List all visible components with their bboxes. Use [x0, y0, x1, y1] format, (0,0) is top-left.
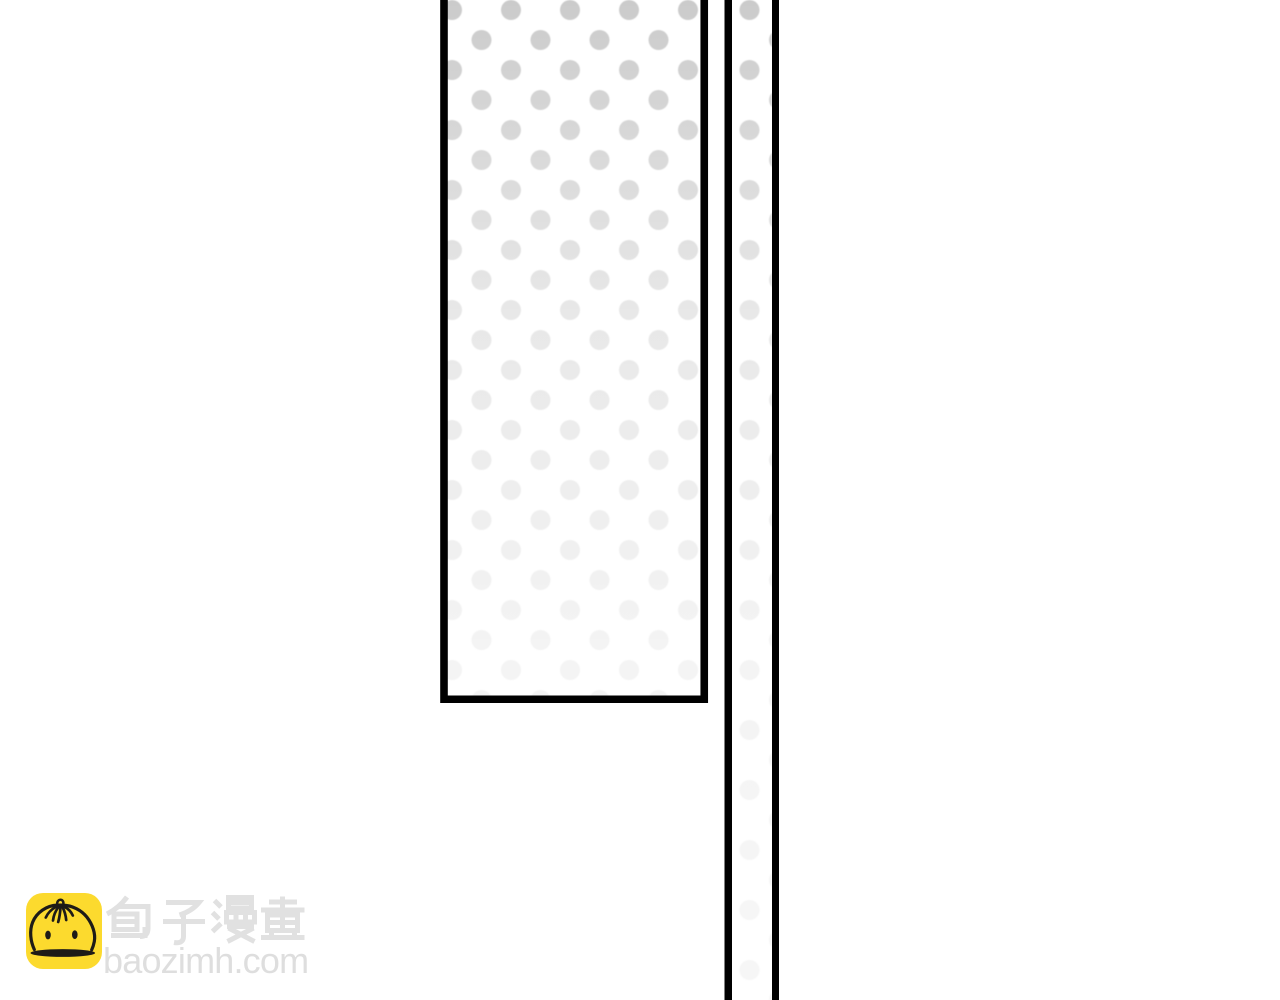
svg-text:baozimh.com: baozimh.com [103, 940, 308, 981]
